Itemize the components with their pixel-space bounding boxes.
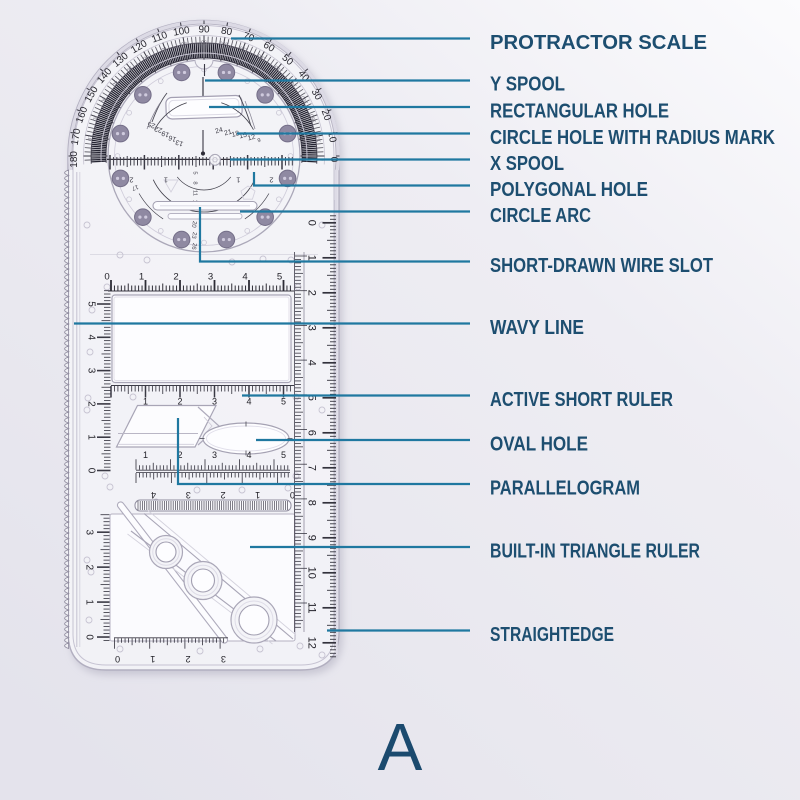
svg-text:7: 7	[306, 465, 318, 471]
svg-text:A: A	[378, 710, 423, 785]
svg-text:2: 2	[306, 290, 318, 296]
svg-text:4: 4	[246, 450, 251, 460]
svg-text:1: 1	[150, 654, 155, 664]
svg-text:3: 3	[306, 325, 318, 331]
svg-text:11: 11	[192, 190, 198, 196]
svg-text:5: 5	[281, 397, 286, 407]
svg-text:3: 3	[221, 654, 226, 664]
svg-text:5: 5	[281, 450, 286, 460]
svg-text:90: 90	[201, 39, 207, 45]
svg-text:POLYGONAL HOLE: POLYGONAL HOLE	[490, 179, 648, 201]
svg-text:1: 1	[86, 434, 97, 440]
svg-text:5: 5	[86, 301, 97, 307]
svg-text:2: 2	[129, 176, 133, 185]
svg-text:SHORT-DRAWN WIRE SLOT: SHORT-DRAWN WIRE SLOT	[490, 255, 713, 277]
svg-text:10: 10	[86, 134, 93, 141]
svg-text:3: 3	[212, 450, 217, 460]
svg-text:2: 2	[186, 654, 191, 664]
svg-text:Y SPOOL: Y SPOOL	[490, 73, 565, 95]
svg-text:3: 3	[86, 368, 97, 374]
svg-text:WAVY LINE: WAVY LINE	[490, 317, 584, 339]
svg-text:OVAL HOLE: OVAL HOLE	[490, 433, 588, 455]
svg-text:1: 1	[139, 272, 144, 283]
svg-text:12: 12	[306, 637, 318, 649]
svg-text:80: 80	[180, 40, 187, 47]
svg-text:5: 5	[192, 171, 198, 174]
svg-text:8: 8	[192, 181, 198, 184]
svg-text:8: 8	[306, 500, 318, 506]
svg-text:4: 4	[246, 397, 251, 407]
svg-text:180: 180	[69, 151, 80, 168]
svg-text:X SPOOL: X SPOOL	[490, 153, 564, 175]
svg-text:RECTANGULAR HOLE: RECTANGULAR HOLE	[490, 100, 669, 122]
svg-text:9: 9	[306, 535, 318, 541]
svg-text:2: 2	[84, 564, 95, 570]
svg-text:1: 1	[236, 176, 240, 185]
svg-text:5: 5	[277, 272, 282, 283]
svg-text:BUILT-IN TRIANGLE RULER: BUILT-IN TRIANGLE RULER	[490, 540, 700, 562]
svg-text:11: 11	[306, 602, 318, 613]
svg-text:2: 2	[86, 401, 97, 407]
svg-text:1: 1	[255, 490, 260, 500]
svg-text:0: 0	[104, 272, 109, 283]
svg-text:1: 1	[143, 450, 148, 460]
svg-text:1: 1	[306, 255, 318, 261]
svg-text:ACTIVE SHORT RULER: ACTIVE SHORT RULER	[490, 389, 673, 411]
svg-text:0: 0	[86, 468, 97, 474]
svg-text:10: 10	[306, 567, 318, 579]
svg-text:3: 3	[186, 490, 191, 500]
svg-text:0: 0	[84, 634, 95, 640]
svg-text:2: 2	[220, 490, 225, 500]
svg-text:PARALLELOGRAM: PARALLELOGRAM	[490, 477, 640, 499]
svg-text:4: 4	[151, 490, 156, 500]
svg-text:0: 0	[306, 220, 318, 226]
svg-text:PROTRACTOR SCALE: PROTRACTOR SCALE	[490, 32, 707, 54]
svg-text:STRAIGHTEDGE: STRAIGHTEDGE	[490, 624, 614, 646]
svg-text:4: 4	[86, 335, 97, 341]
svg-text:CIRCLE HOLE WITH RADIUS MARK: CIRCLE HOLE WITH RADIUS MARK	[490, 127, 775, 149]
svg-text:2: 2	[269, 176, 273, 185]
svg-text:4: 4	[306, 360, 318, 366]
svg-text:90: 90	[198, 24, 210, 35]
svg-text:3: 3	[208, 272, 213, 283]
svg-text:1: 1	[84, 599, 95, 605]
svg-text:1: 1	[164, 176, 168, 185]
svg-text:2: 2	[173, 272, 178, 283]
svg-text:4: 4	[242, 272, 248, 283]
svg-text:0: 0	[115, 654, 120, 664]
svg-text:CIRCLE ARC: CIRCLE ARC	[490, 205, 591, 227]
svg-text:6: 6	[306, 430, 318, 436]
svg-text:3: 3	[84, 530, 95, 536]
